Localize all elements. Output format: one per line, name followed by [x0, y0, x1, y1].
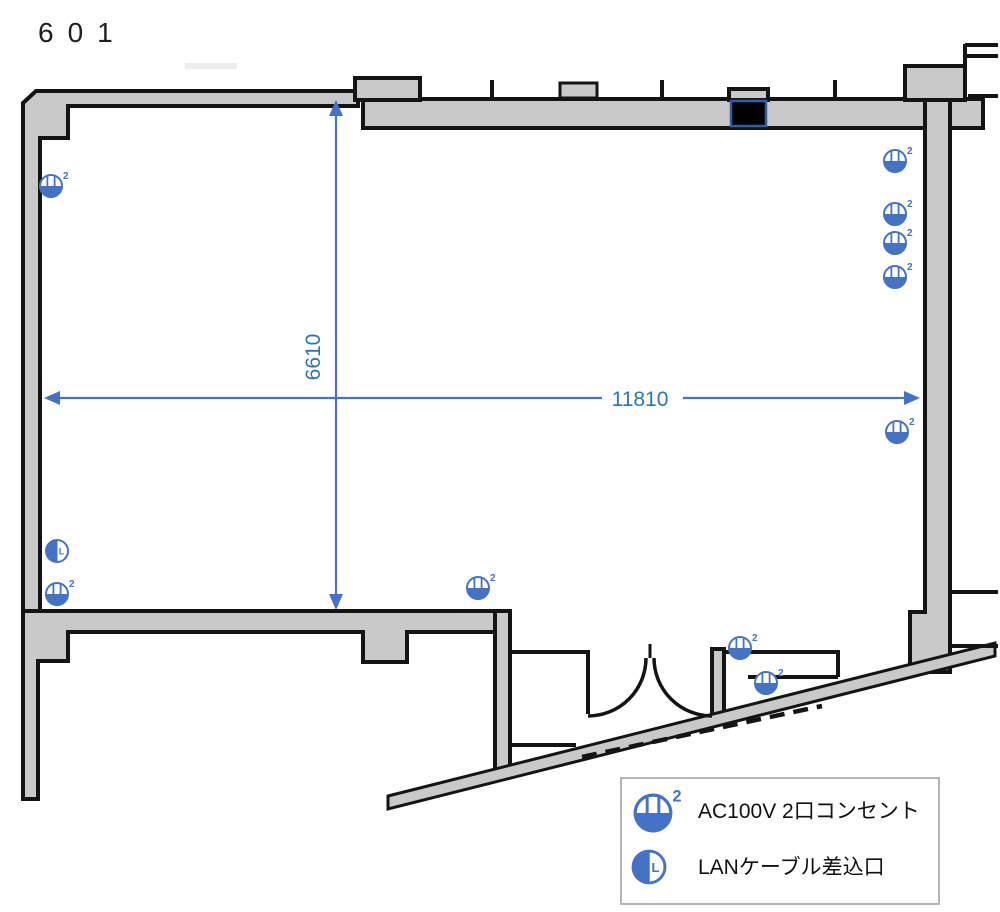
ac-outlet-marker	[884, 262, 913, 289]
pillar-top-left	[355, 78, 420, 100]
equipment-box	[731, 101, 766, 126]
wall-bottom-lower-left	[23, 611, 507, 799]
walls	[23, 66, 995, 809]
pillar-top-right	[905, 66, 965, 100]
wall-right	[910, 100, 950, 672]
wall-door-left	[495, 611, 510, 774]
faint-mark	[185, 63, 237, 69]
ac-outlet-marker	[884, 199, 913, 226]
ac-outlet-marker	[46, 579, 75, 606]
height-dimension-label: 6610	[302, 334, 325, 381]
legend-lan-label: LANケーブル差込口	[698, 856, 885, 879]
ac-outlet-marker	[884, 228, 913, 255]
ac-outlet-marker	[886, 417, 915, 444]
width-dimension: 11810	[44, 388, 920, 411]
ac-outlet-marker	[40, 171, 69, 198]
ac-outlet-marker	[467, 573, 496, 600]
ac-outlet-marker	[729, 633, 758, 660]
legend: AC100V 2口コンセント LANケーブル差込口	[621, 778, 939, 904]
ac-outlet-marker	[755, 668, 784, 695]
width-dimension-label: 11810	[612, 388, 669, 411]
door-arc-left	[588, 658, 646, 716]
lan-port-marker	[46, 540, 68, 562]
legend-box	[621, 778, 939, 904]
notch-top	[729, 89, 768, 100]
legend-outlet-label: AC100V 2口コンセント	[698, 800, 920, 823]
wall-ticks	[492, 44, 998, 646]
height-dimension: 6610	[302, 100, 343, 610]
floor-plan-page: 2 L 601	[0, 0, 1000, 912]
door-arc-right	[654, 658, 712, 716]
room-title: 601	[38, 17, 127, 48]
wall-top-band	[363, 99, 983, 128]
legend-lan-icon	[633, 851, 665, 883]
bump-top	[560, 83, 597, 98]
wall-door-right-jamb	[712, 649, 724, 717]
door-left-step	[510, 652, 588, 714]
ac-outlet-marker	[884, 146, 913, 173]
floor-plan: 2 L 601	[0, 0, 1000, 912]
